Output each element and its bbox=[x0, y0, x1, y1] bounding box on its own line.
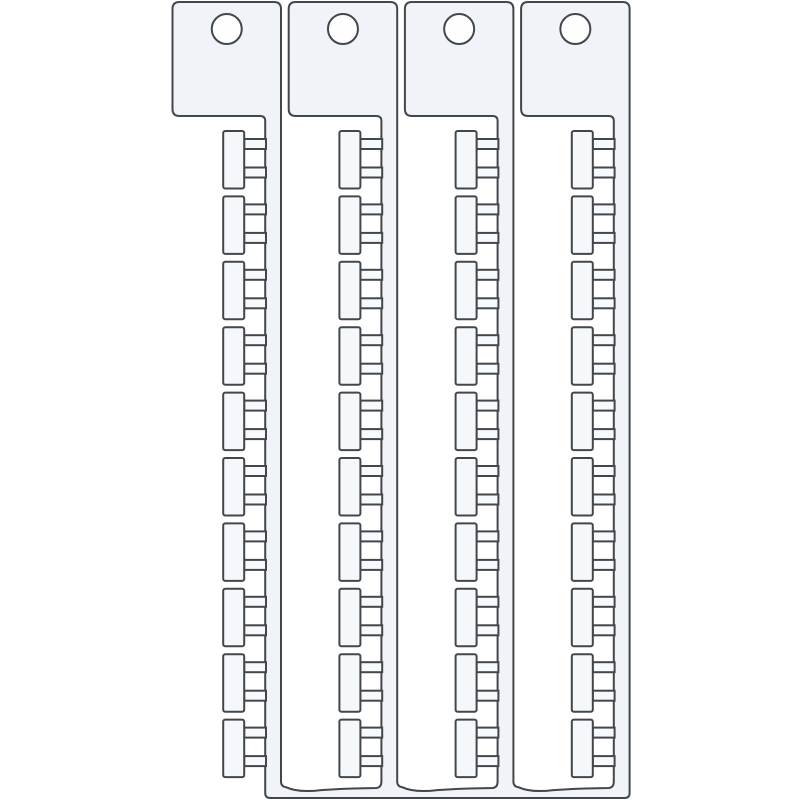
tag-bridge bbox=[244, 270, 266, 280]
tag-bridge bbox=[244, 495, 266, 505]
tag-bridge bbox=[593, 466, 615, 476]
marker-tag bbox=[456, 131, 477, 189]
tag-bridge bbox=[360, 662, 382, 672]
tag-bridge bbox=[244, 531, 266, 541]
tag-bridge bbox=[477, 495, 499, 505]
tag-bridge bbox=[244, 466, 266, 476]
marker-tag bbox=[339, 589, 360, 647]
marker-tag bbox=[339, 262, 360, 320]
tag-bridge bbox=[477, 401, 499, 411]
tag-bridge bbox=[360, 756, 382, 766]
tag-bridge bbox=[360, 691, 382, 701]
tag-bridge bbox=[244, 233, 266, 243]
tag-bridge bbox=[360, 298, 382, 308]
tag-bridge bbox=[360, 495, 382, 505]
tag-bridge bbox=[360, 560, 382, 570]
tag-bridge bbox=[244, 662, 266, 672]
tag-bridge bbox=[477, 597, 499, 607]
tag-bridge bbox=[244, 756, 266, 766]
tag-bridge bbox=[593, 597, 615, 607]
tag-bridge bbox=[244, 691, 266, 701]
tag-bridge bbox=[360, 429, 382, 439]
tag-bridge bbox=[360, 531, 382, 541]
marker-tag bbox=[456, 720, 477, 778]
tag-bridge bbox=[244, 597, 266, 607]
marker-tag bbox=[339, 393, 360, 451]
tag-bridge bbox=[477, 560, 499, 570]
tag-bridge bbox=[477, 691, 499, 701]
tag-bridge bbox=[593, 560, 615, 570]
marker-tag bbox=[456, 196, 477, 254]
tag-bridge bbox=[360, 233, 382, 243]
marker-tag bbox=[572, 262, 593, 320]
marker-tag bbox=[223, 196, 244, 254]
tag-bridge bbox=[360, 204, 382, 214]
tag-bridge bbox=[360, 270, 382, 280]
product-drawing bbox=[0, 0, 800, 800]
tag-bridge bbox=[477, 335, 499, 345]
tag-bridge bbox=[477, 662, 499, 672]
marker-tag bbox=[572, 393, 593, 451]
marker-tag bbox=[456, 654, 477, 712]
tag-bridge bbox=[477, 364, 499, 374]
marker-tag bbox=[572, 458, 593, 516]
tag-bridge bbox=[244, 204, 266, 214]
tag-bridge bbox=[477, 429, 499, 439]
tag-bridge bbox=[593, 204, 615, 214]
tag-bridge bbox=[593, 233, 615, 243]
marker-tag bbox=[339, 196, 360, 254]
marker-tag bbox=[572, 131, 593, 189]
marker-tag bbox=[223, 720, 244, 778]
tag-bridge bbox=[360, 364, 382, 374]
tag-bridge bbox=[477, 531, 499, 541]
tag-bridge bbox=[593, 756, 615, 766]
tag-bridge bbox=[244, 560, 266, 570]
tag-bridge bbox=[477, 625, 499, 635]
marker-tag bbox=[572, 327, 593, 385]
tag-bridge bbox=[244, 168, 266, 178]
tag-bridge bbox=[593, 401, 615, 411]
marker-tag bbox=[223, 458, 244, 516]
tag-bridge bbox=[477, 728, 499, 738]
hang-hole bbox=[560, 14, 590, 44]
marker-tag bbox=[456, 393, 477, 451]
marker-tag bbox=[339, 720, 360, 778]
tag-bridge bbox=[593, 335, 615, 345]
tag-bridge bbox=[593, 531, 615, 541]
tag-bridge bbox=[360, 625, 382, 635]
marker-tag bbox=[223, 131, 244, 189]
tag-bridge bbox=[360, 139, 382, 149]
tag-bridge bbox=[244, 728, 266, 738]
marker-tag bbox=[572, 720, 593, 778]
tag-bridge bbox=[360, 728, 382, 738]
marker-tag bbox=[456, 262, 477, 320]
marker-tag bbox=[223, 523, 244, 581]
tag-bridge bbox=[477, 204, 499, 214]
tag-bridge bbox=[244, 298, 266, 308]
hang-hole bbox=[212, 14, 242, 44]
tag-bridge bbox=[477, 168, 499, 178]
marker-tag bbox=[456, 327, 477, 385]
tag-bridge bbox=[593, 625, 615, 635]
tag-bridge bbox=[593, 495, 615, 505]
marker-tag bbox=[339, 131, 360, 189]
tag-bridge bbox=[244, 401, 266, 411]
tag-bridge bbox=[244, 429, 266, 439]
tag-bridge bbox=[593, 728, 615, 738]
marker-tag bbox=[223, 393, 244, 451]
tag-bridge bbox=[593, 662, 615, 672]
tag-bridge bbox=[593, 298, 615, 308]
marker-tag bbox=[339, 523, 360, 581]
marker-tag bbox=[456, 523, 477, 581]
tag-bridge bbox=[477, 270, 499, 280]
tag-bridge bbox=[360, 597, 382, 607]
marker-tag bbox=[223, 589, 244, 647]
tag-bridge bbox=[244, 625, 266, 635]
marker-tag bbox=[339, 654, 360, 712]
tag-bridge bbox=[360, 335, 382, 345]
marker-tag bbox=[572, 654, 593, 712]
tag-bridge bbox=[593, 139, 615, 149]
marker-strips-canvas bbox=[0, 0, 800, 800]
hang-hole bbox=[328, 14, 358, 44]
tag-bridge bbox=[477, 466, 499, 476]
marker-tag bbox=[572, 196, 593, 254]
tag-bridge bbox=[360, 168, 382, 178]
marker-tag bbox=[456, 458, 477, 516]
marker-tag bbox=[223, 654, 244, 712]
tag-bridge bbox=[477, 756, 499, 766]
marker-tag bbox=[339, 458, 360, 516]
marker-tag bbox=[572, 589, 593, 647]
background bbox=[0, 0, 800, 800]
marker-tag bbox=[223, 327, 244, 385]
marker-tag bbox=[339, 327, 360, 385]
tag-bridge bbox=[593, 691, 615, 701]
tag-bridge bbox=[360, 466, 382, 476]
tag-bridge bbox=[360, 401, 382, 411]
marker-strips-svg bbox=[0, 0, 800, 800]
tag-bridge bbox=[244, 335, 266, 345]
tag-bridge bbox=[477, 233, 499, 243]
marker-tag bbox=[223, 262, 244, 320]
hang-hole bbox=[444, 14, 474, 44]
marker-tag bbox=[456, 589, 477, 647]
tag-bridge bbox=[477, 139, 499, 149]
tag-bridge bbox=[593, 270, 615, 280]
tag-bridge bbox=[244, 139, 266, 149]
tag-bridge bbox=[593, 168, 615, 178]
tag-bridge bbox=[593, 429, 615, 439]
tag-bridge bbox=[593, 364, 615, 374]
tag-bridge bbox=[244, 364, 266, 374]
tag-bridge bbox=[477, 298, 499, 308]
marker-tag bbox=[572, 523, 593, 581]
